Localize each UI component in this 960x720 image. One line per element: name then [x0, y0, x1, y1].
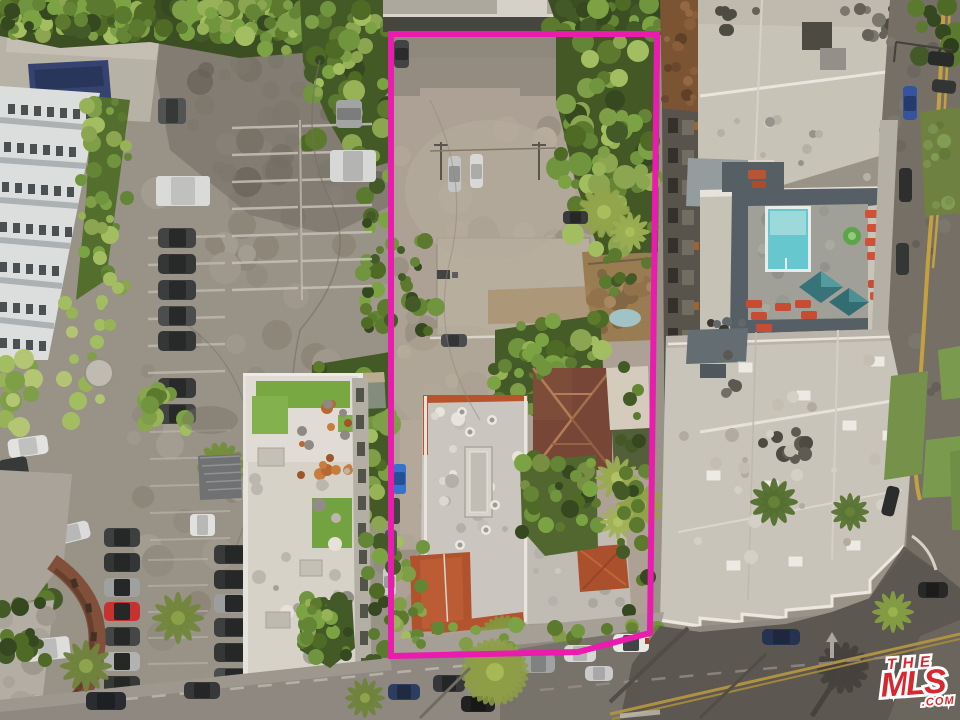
svg-text:.COM: .COM [921, 695, 955, 709]
